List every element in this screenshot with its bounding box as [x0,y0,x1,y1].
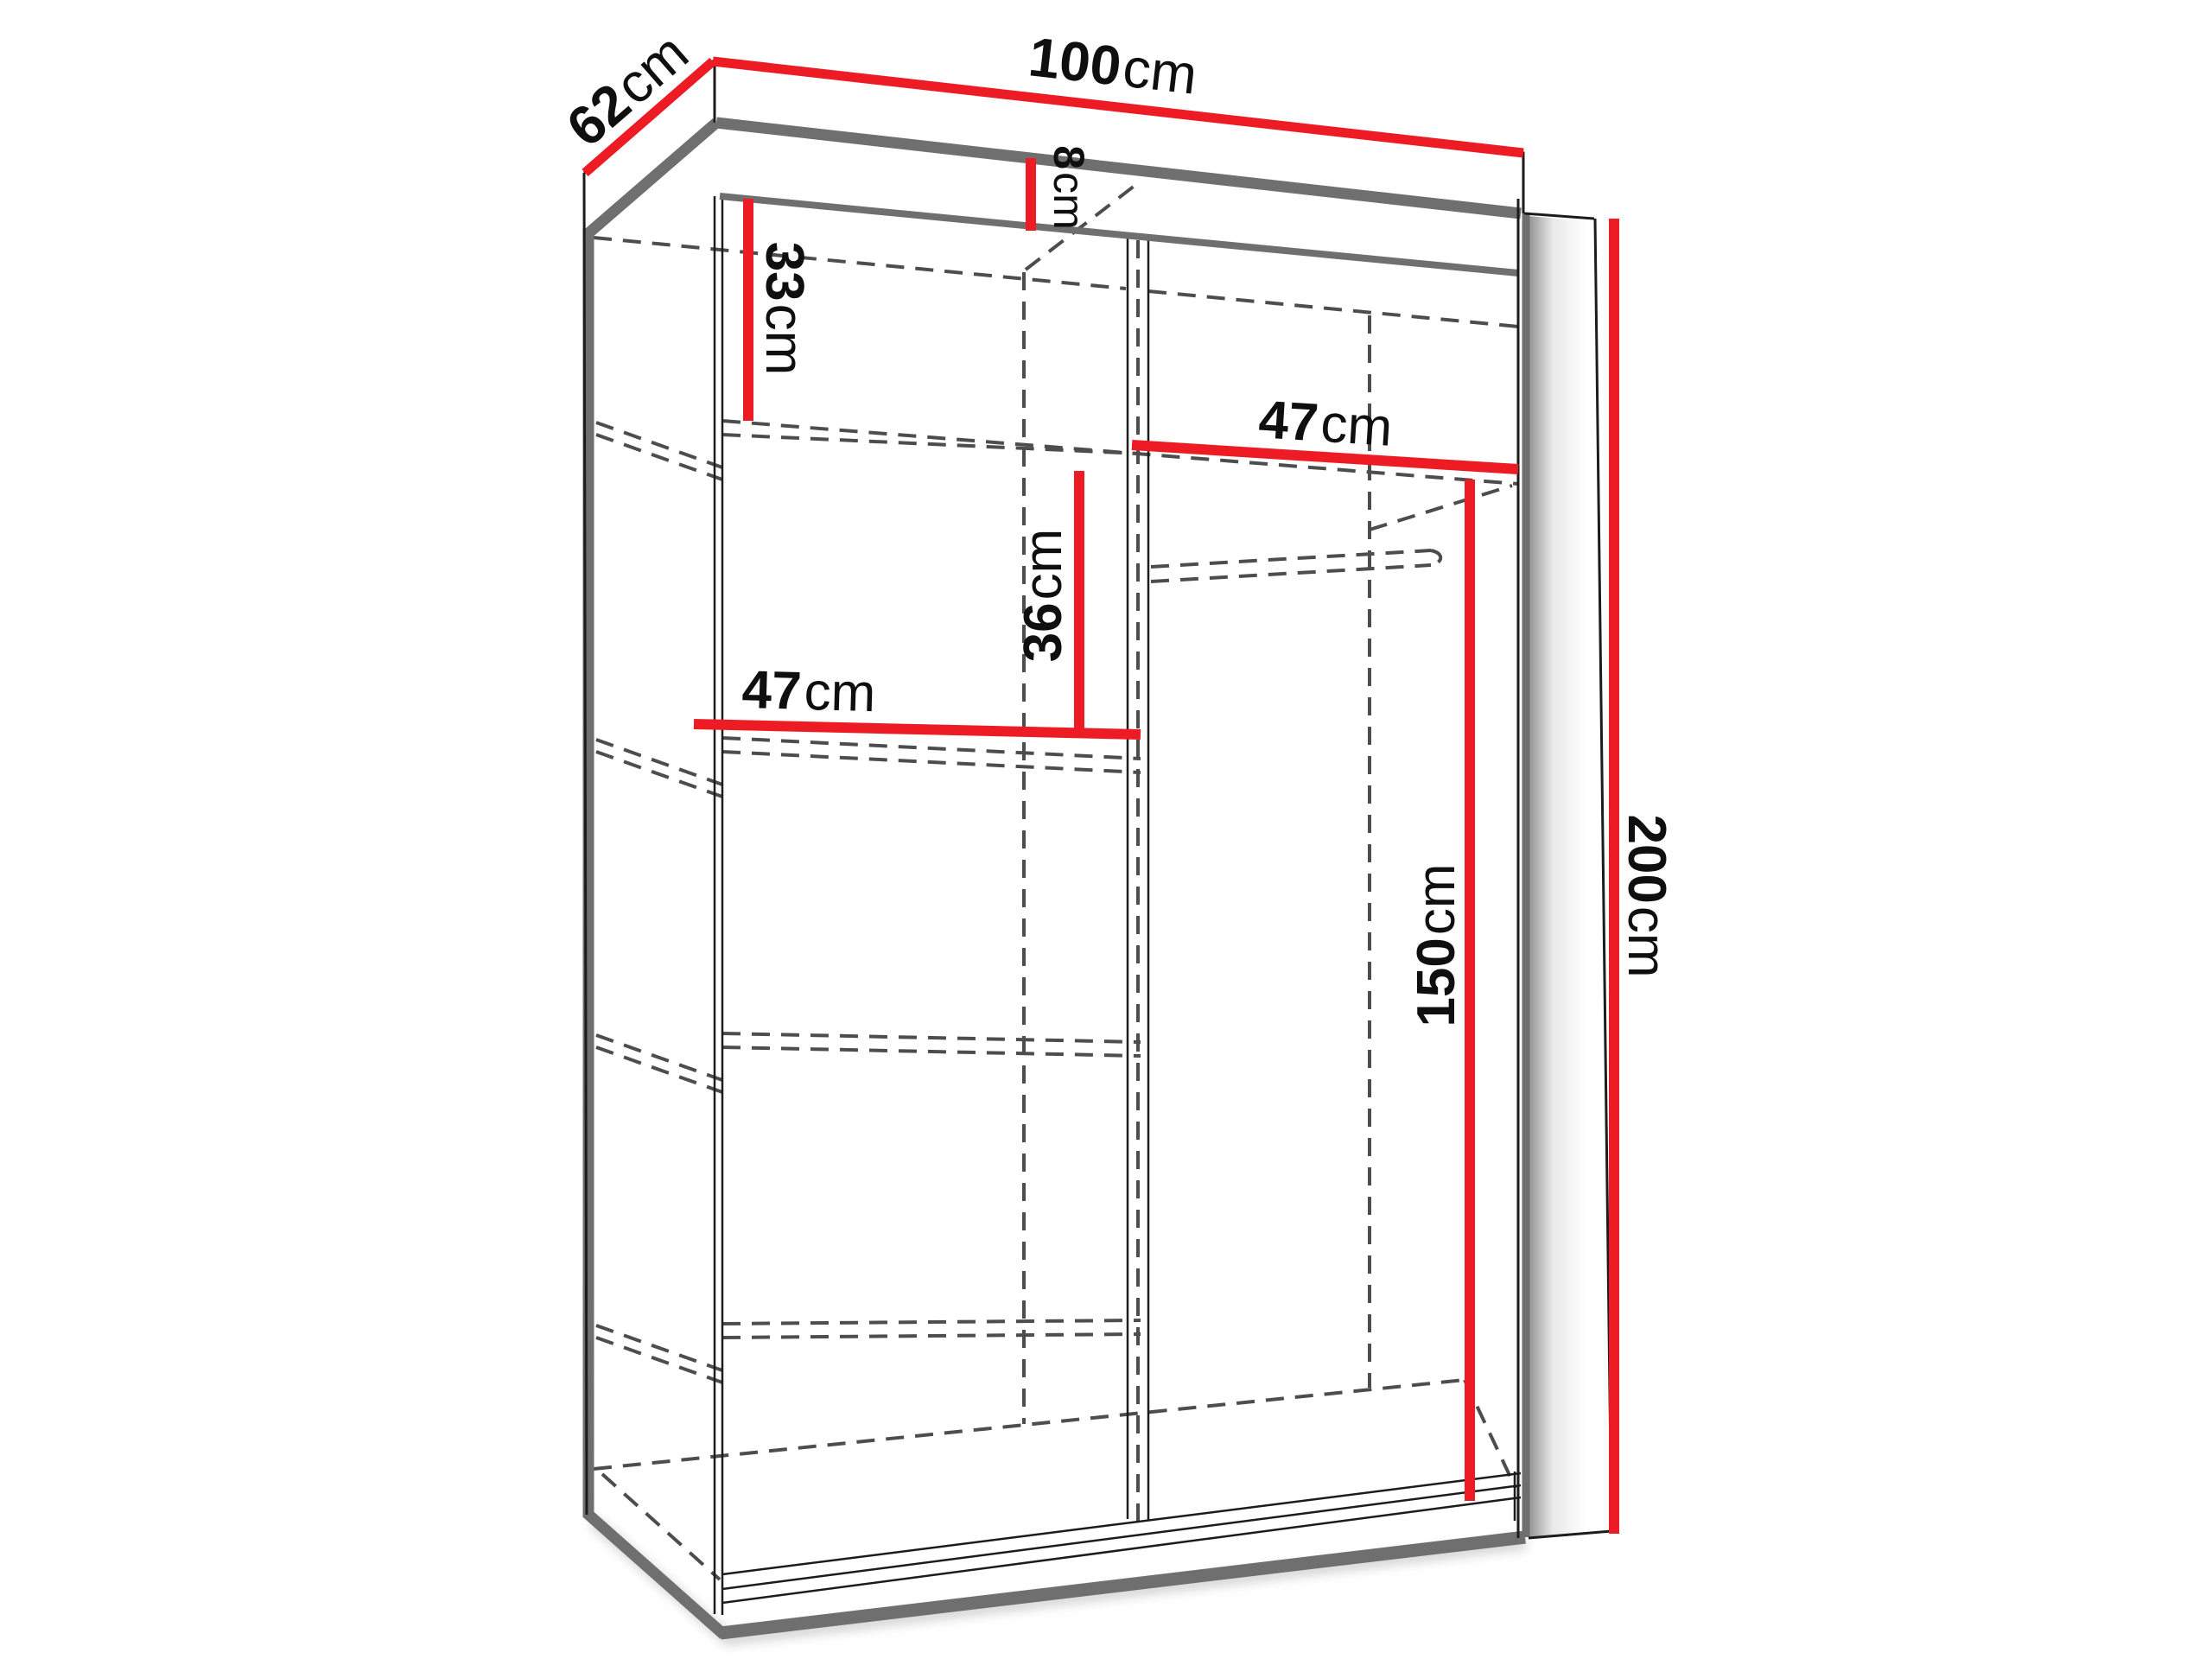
dimension-line-47cm-left [694,724,1141,734]
dimension-value: 100 [1026,25,1124,98]
shadow-edges [593,1521,1526,1639]
interior-edges [715,196,1521,1615]
dimension-label-47cm-right-shelf: 47cm [1257,393,1394,455]
dimension-value: 8 [1045,145,1093,169]
dimension-label-36cm: 36cm [1017,529,1071,663]
hidden-edges [594,186,1518,1580]
right-side-panel-face [1528,216,1611,1537]
dimension-value: 36 [1014,602,1073,662]
wardrobe-line-drawing [0,0,2212,1659]
wardrobe-dimension-diagram: 62cm 100cm 8cm 33cm 47cm 36cm 47cm 150cm… [0,0,2212,1659]
dimension-value: 150 [1407,938,1466,1027]
dimension-unit: cm [1617,906,1676,978]
dimension-label-200cm: 200cm [1619,814,1673,977]
dimension-unit: cm [1120,36,1200,106]
dimension-unit: cm [1407,863,1466,935]
dimension-value: 47 [1257,390,1320,453]
dimension-label-150cm: 150cm [1410,863,1464,1027]
dimension-label-47cm-left-shelf: 47cm [741,664,876,721]
outline-edges [584,61,1611,1538]
dimension-lines [585,61,1614,1534]
dimension-unit: cm [754,304,814,376]
dimension-label-33cm: 33cm [757,242,810,376]
dimension-unit: cm [1319,394,1395,458]
dimension-unit: cm [1045,172,1093,230]
dimension-value: 33 [754,242,814,302]
dimension-label-8cm: 8cm [1047,145,1090,229]
panel-edges [587,123,1526,1635]
dimension-unit: cm [804,662,877,723]
dimension-value: 47 [741,660,803,721]
dimension-value: 200 [1617,814,1676,903]
dimension-unit: cm [1014,529,1073,601]
